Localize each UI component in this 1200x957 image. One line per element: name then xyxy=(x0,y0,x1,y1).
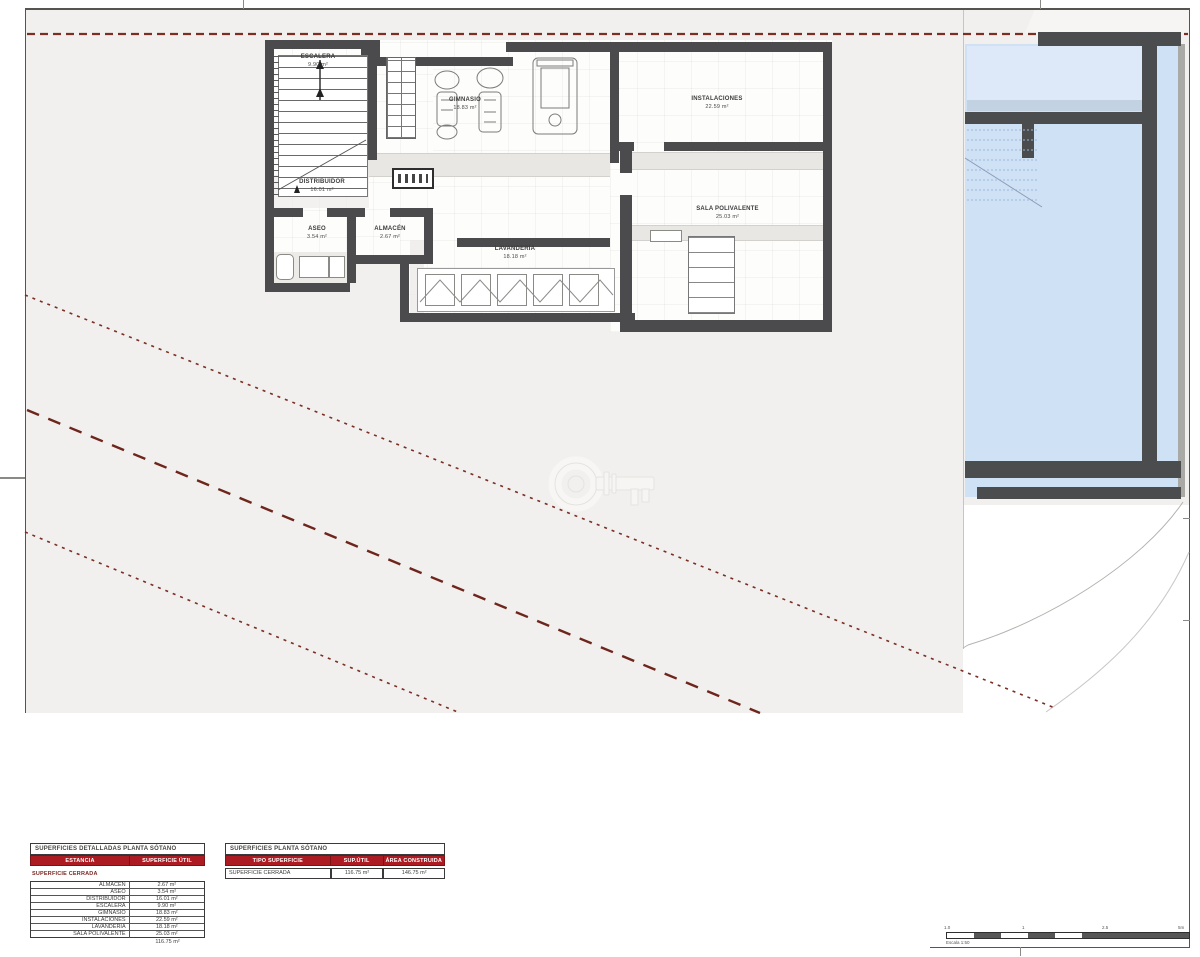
pool-stairs xyxy=(0,0,1200,957)
